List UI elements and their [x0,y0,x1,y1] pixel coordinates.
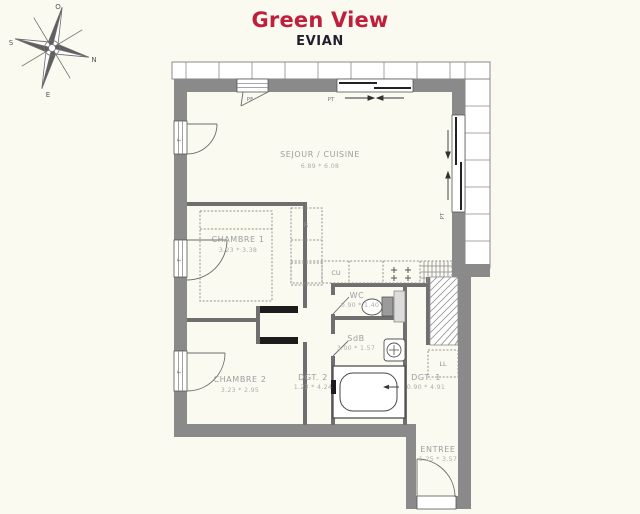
washer-label: LL [439,360,447,368]
sliding-door-right-label: PT [440,212,446,219]
dims-chambre1: 3.23 * 3.38 [219,247,258,254]
compass-east-label: E [46,91,50,99]
label-dgt1: DGT. 1 [411,373,441,382]
hob-burners-icon [391,267,411,281]
window-label-2: F [177,258,183,261]
wall-sejour-chambre1 [187,202,305,206]
washbasin [384,339,405,361]
french-window-top: PF [237,79,268,106]
terrace-band-right [465,79,490,268]
dims-wc: 0.90 * 1.40 [341,302,380,309]
wc-counter [394,291,405,322]
label-chambre2: CHAMBRE 2 [213,375,266,384]
wall-right-lower [458,277,471,509]
sliding-direction-arrows-right [446,130,450,200]
window-sejour: F [174,121,217,154]
wall-bottom [174,424,416,437]
label-wc: WC [350,291,365,300]
door-leaf-chambre2 [260,337,298,344]
window-chambre2: F [174,351,225,391]
dims-entree: 1.25 * 3.57 [419,456,458,463]
sliding-door-top-label: PT [328,97,335,103]
label-sejour: SEJOUR / CUISINE [280,150,360,159]
bed-chambre1 [200,211,272,301]
french-door-label: PF [247,97,253,103]
page-subtitle: EVIAN [0,34,640,49]
terrace-band-top [172,62,490,79]
closet-hatch [430,277,458,345]
wall-right-step [452,264,490,277]
dims-dgt2: 1.23 * 4.24 [294,384,333,391]
floor-plan-page: Green View EVIAN O N E [0,0,640,514]
hob-label: CU [331,269,341,277]
wall-closet-left [426,277,430,345]
floor-plan-drawing: O N E S [0,0,640,514]
page-title: Green View [0,8,640,32]
wall-chambre1-chambre2 [187,318,258,322]
wall-top [174,79,465,92]
door-leaf-chambre1 [260,306,298,313]
window-label-1: F [177,138,183,141]
window-label-3: F [177,370,183,373]
dims-chambre2: 3.23 * 2.95 [221,387,260,394]
label-sdb: SdB [347,334,364,343]
label-entree: ENTREE [420,445,455,454]
wall-corridor-left-upper [303,202,307,308]
dims-sdb: 3.00 * 1.57 [337,345,376,352]
wall-door-stub [256,306,260,344]
fridge-label: R [304,221,309,229]
dims-dgt1: 0.90 * 4.91 [407,384,446,391]
label-dgt2: DGT. 2 [298,373,328,382]
entry-door [417,459,456,509]
bathtub [331,366,405,418]
sliding-door-top: PT [328,79,413,103]
sliding-direction-arrows-top [345,96,404,100]
sliding-door-right: PT [440,115,465,219]
dims-sejour: 6.89 * 6.08 [301,163,340,170]
label-chambre1: CHAMBRE 1 [211,235,264,244]
kitchen-counter: R CU [291,208,452,285]
wall-entry-left [406,437,416,496]
compass-north-label: N [91,56,96,64]
